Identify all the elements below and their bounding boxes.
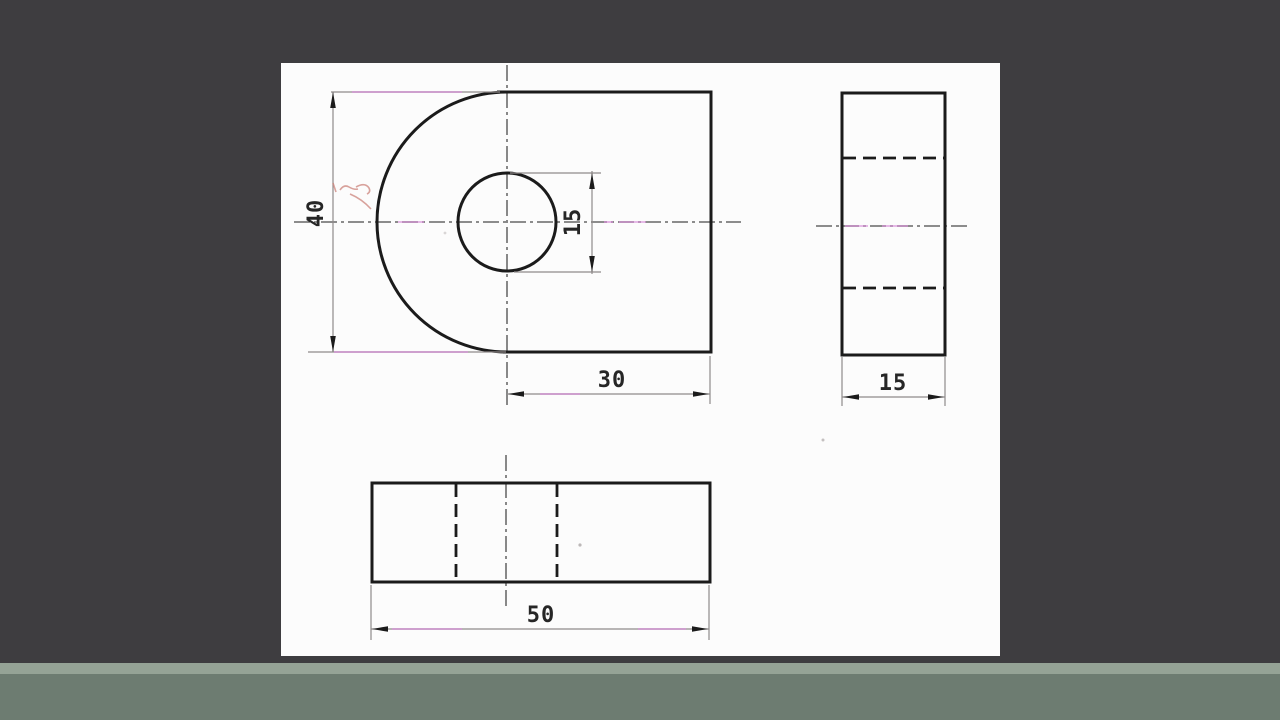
dim-label-top-length: 50 — [527, 603, 556, 628]
orthographic-drawing: 40 15 30 — [0, 0, 1280, 720]
screen: 40 15 30 — [0, 0, 1280, 720]
dim-side-depth: 15 — [842, 357, 945, 406]
dim-label-front-width: 30 — [598, 368, 627, 393]
red-pencil-annotation — [333, 183, 371, 209]
dim-front-width: 30 — [507, 356, 710, 404]
top-view — [372, 483, 710, 582]
side-view — [842, 93, 945, 355]
dim-label-front-height: 40 — [304, 199, 329, 228]
centerlines — [294, 65, 970, 608]
dim-top-length: 50 — [371, 585, 709, 640]
side-outline — [842, 93, 945, 355]
scan-specks — [444, 232, 825, 547]
dim-label-front-hole: 15 — [561, 208, 586, 237]
dim-label-side-depth: 15 — [879, 371, 908, 396]
top-outline — [372, 483, 710, 582]
